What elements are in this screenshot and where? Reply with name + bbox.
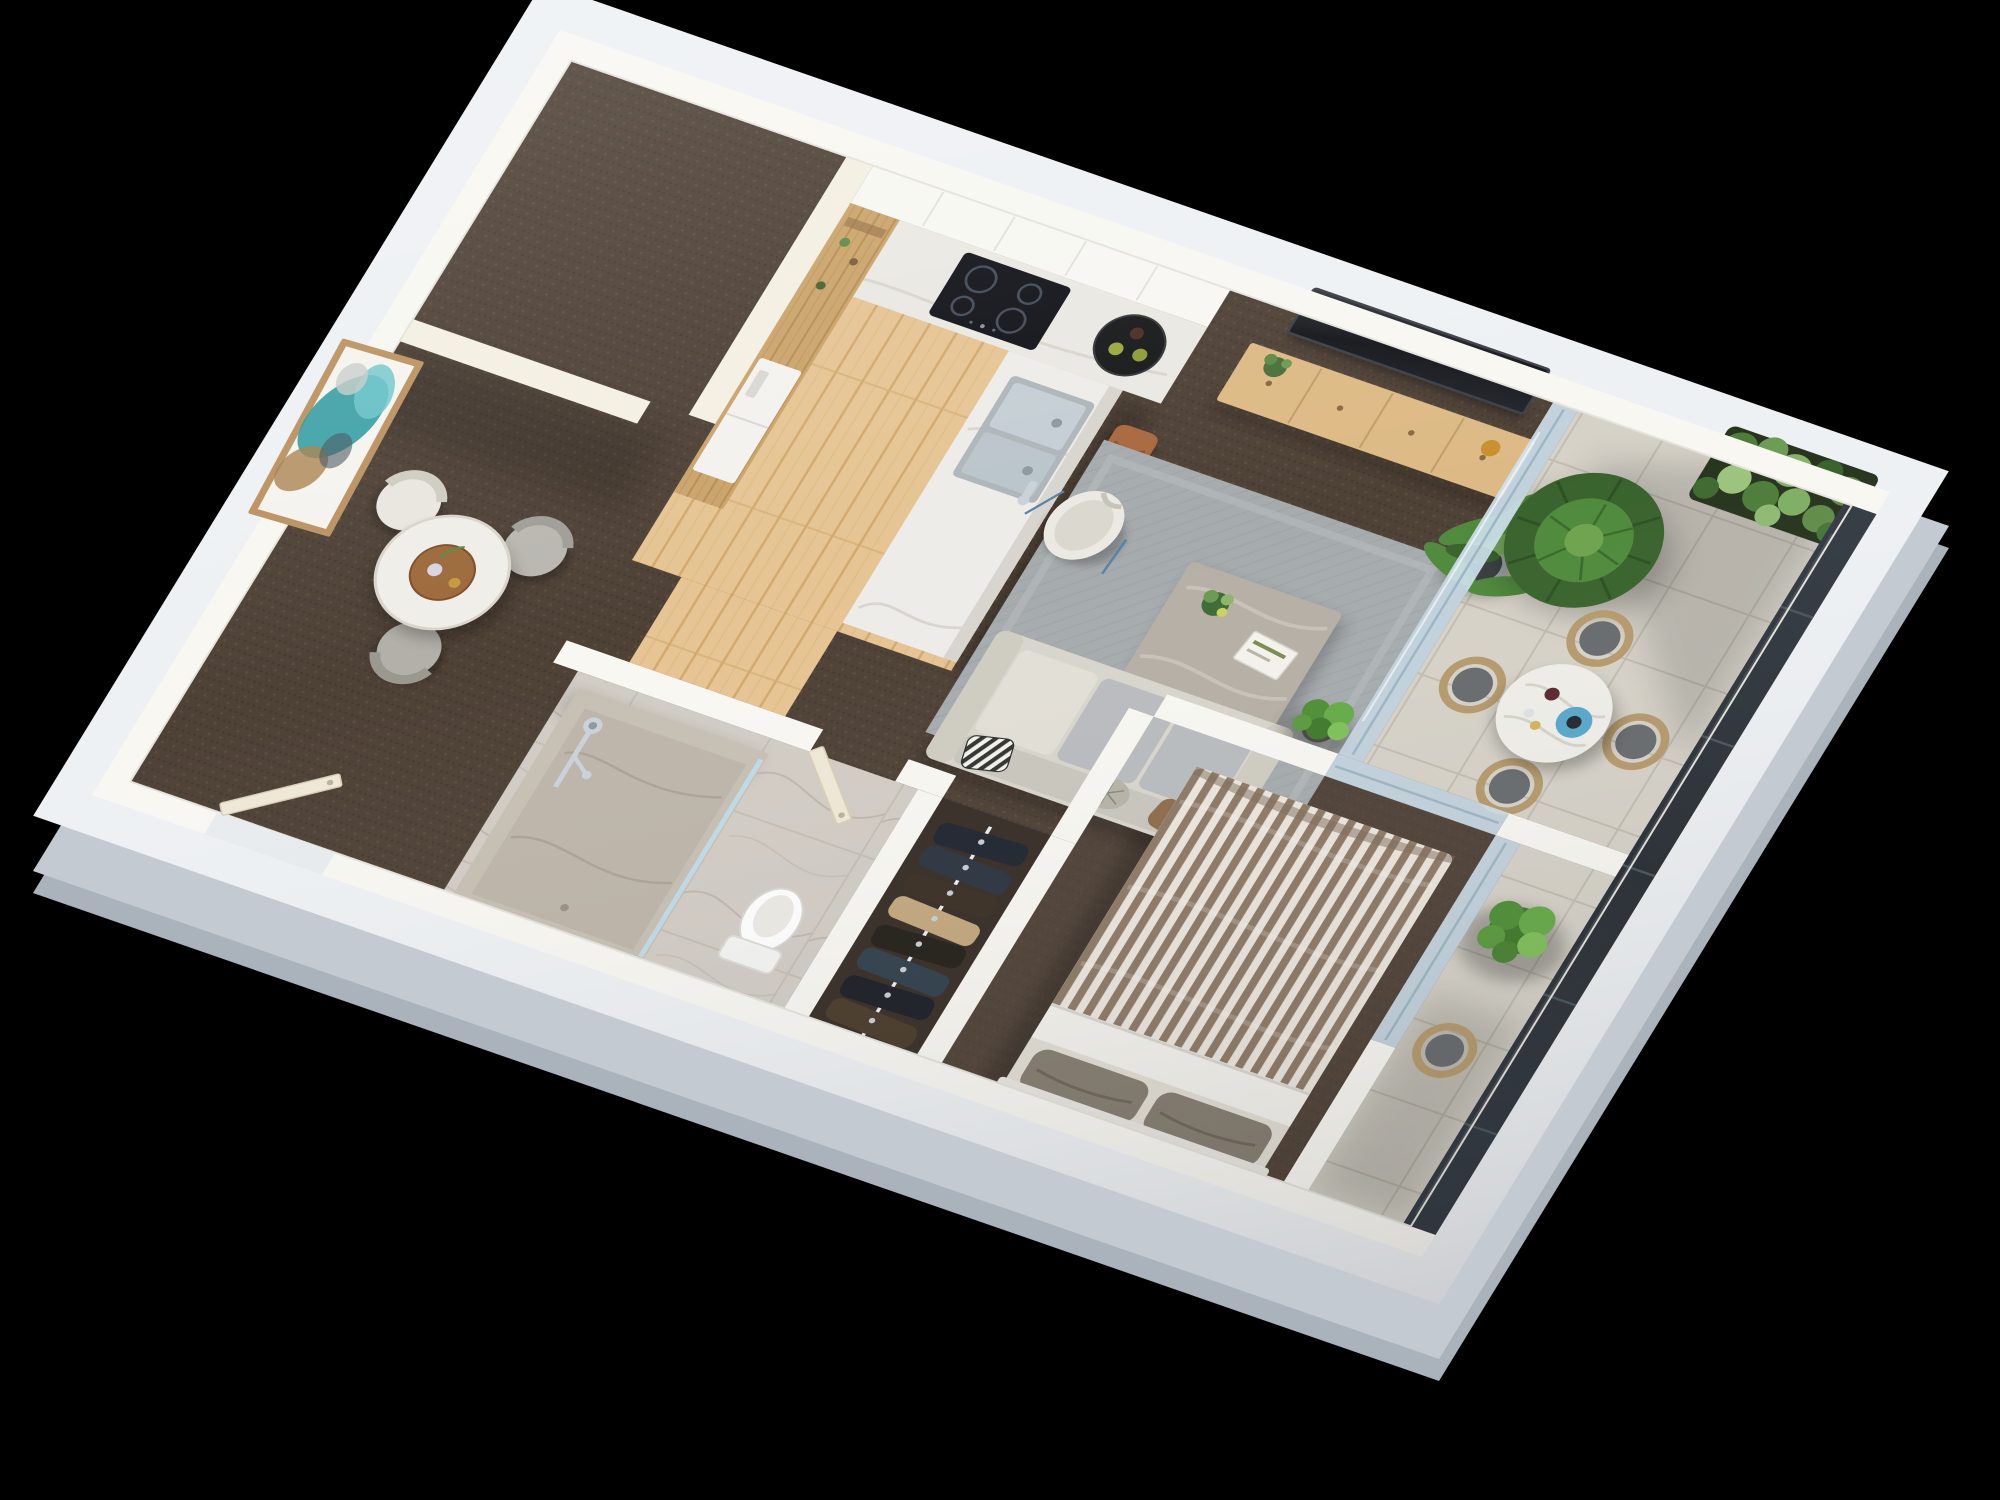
render-stage [0,0,2000,1500]
floorplan-svg [0,0,2000,1500]
